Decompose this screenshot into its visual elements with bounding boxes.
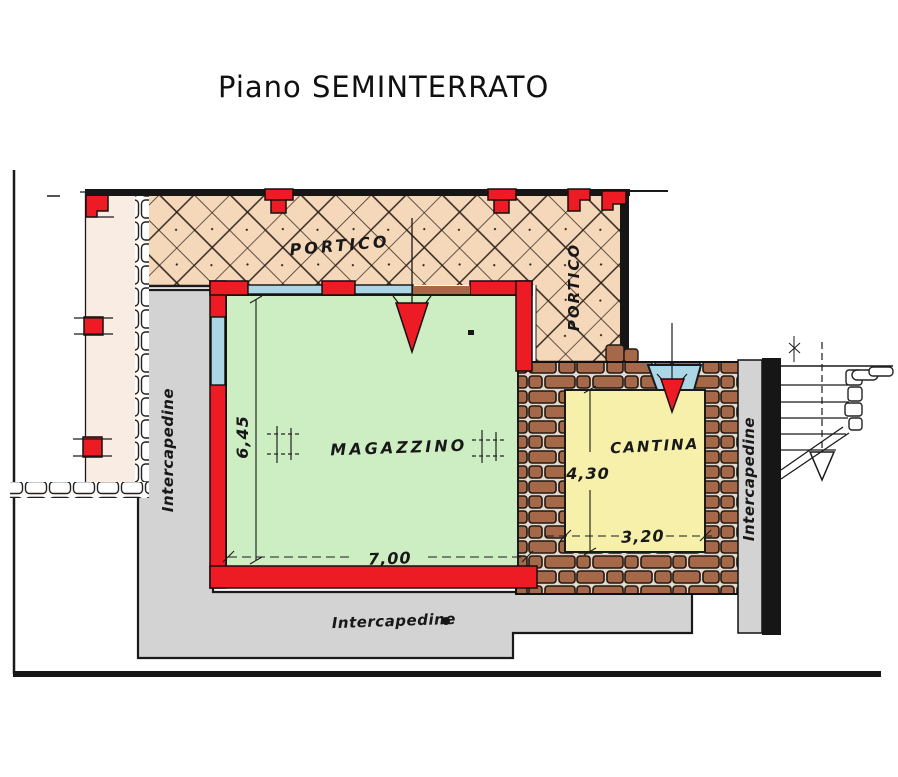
dim-label-cantina-width: 3,20 — [621, 526, 665, 547]
point-mark — [468, 330, 474, 335]
magazzino-window-top-1 — [248, 285, 322, 294]
room-label-portico-side: PORTICO — [565, 243, 583, 331]
magazzino-top-brown-sill — [413, 286, 470, 294]
pillar-top-1 — [265, 189, 293, 200]
magazzino-top-pier — [322, 281, 355, 295]
floor-plan-page: Piano SEMINTERRATO — [0, 0, 898, 777]
magazzino-window-left — [211, 317, 225, 385]
cavity-label-left: Intercapedine — [159, 388, 177, 512]
retaining-wall — [762, 358, 781, 635]
magazzino-right-wall — [516, 281, 532, 371]
pillar-top-2 — [488, 189, 516, 200]
boundary-line-bottom — [13, 671, 881, 677]
magazzino-room — [226, 295, 518, 568]
magazzino-bottom-wall — [210, 566, 537, 588]
dim-label-magazzino-width: 7,00 — [368, 548, 412, 569]
main-top-wall — [85, 189, 630, 196]
stone-facing-row — [10, 482, 149, 498]
stone-block — [624, 349, 638, 362]
pillar-middle-left — [84, 317, 103, 335]
dim-label-magazzino-height: 6,45 — [233, 415, 252, 458]
cavity-label-right: Intercapedine — [740, 417, 758, 541]
magazzino-top-left-corner — [210, 281, 248, 295]
pillar-top-1-stem — [271, 200, 286, 213]
dim-label-cantina-height: 4,30 — [565, 464, 609, 483]
magazzino-window-top-2 — [355, 285, 413, 294]
stone-block — [606, 345, 624, 362]
floor-plan-drawing: Piano SEMINTERRATO — [0, 0, 898, 777]
portico-right-wall — [620, 191, 629, 363]
pillar-bottom-left — [83, 437, 102, 457]
pillar-top-2-stem — [494, 200, 509, 213]
stone-facing-column — [135, 194, 149, 482]
page-title: Piano SEMINTERRATO — [218, 70, 549, 104]
